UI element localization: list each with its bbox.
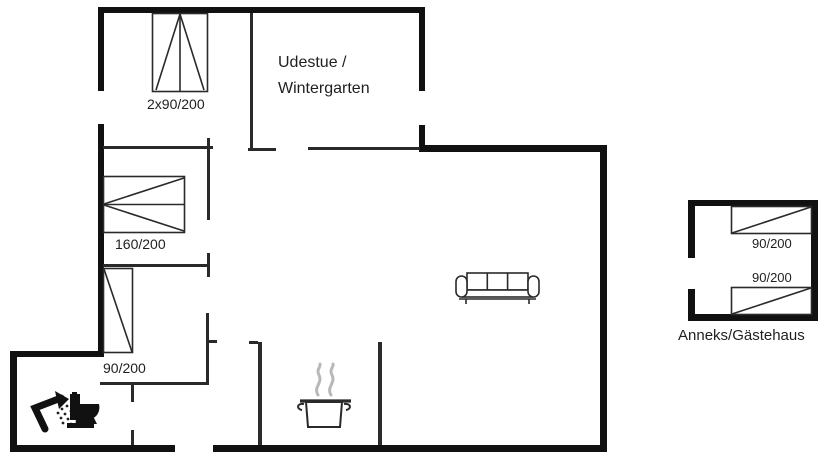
bed-label-2x90: 2x90/200	[147, 97, 205, 111]
bed-160-icon	[104, 177, 185, 233]
bed-double-icon	[153, 14, 208, 92]
annex-label: Anneks/Gästehaus	[678, 328, 805, 343]
annex-bed-top-icon	[732, 207, 812, 234]
annex-bed-label-bottom: 90/200	[752, 271, 792, 284]
toilet-icon	[67, 392, 99, 428]
furniture-layer	[0, 0, 834, 460]
cooking-pot-icon	[298, 401, 351, 427]
steam-icon	[317, 364, 334, 395]
conservatory-label-line2: Wintergarten	[278, 76, 370, 102]
bed-label-90: 90/200	[103, 361, 146, 375]
annex-bed-label-top: 90/200	[752, 237, 792, 250]
bed-90-icon	[104, 269, 133, 353]
bed-label-160: 160/200	[115, 237, 166, 251]
conservatory-label-line1: Udestue /	[278, 50, 370, 76]
room-label-conservatory: Udestue / Wintergarten	[278, 50, 370, 102]
floor-plan: Udestue / Wintergarten 2x90/200 160/200 …	[0, 0, 834, 460]
sofa-icon	[456, 273, 539, 304]
annex-bed-bottom-icon	[732, 288, 812, 315]
